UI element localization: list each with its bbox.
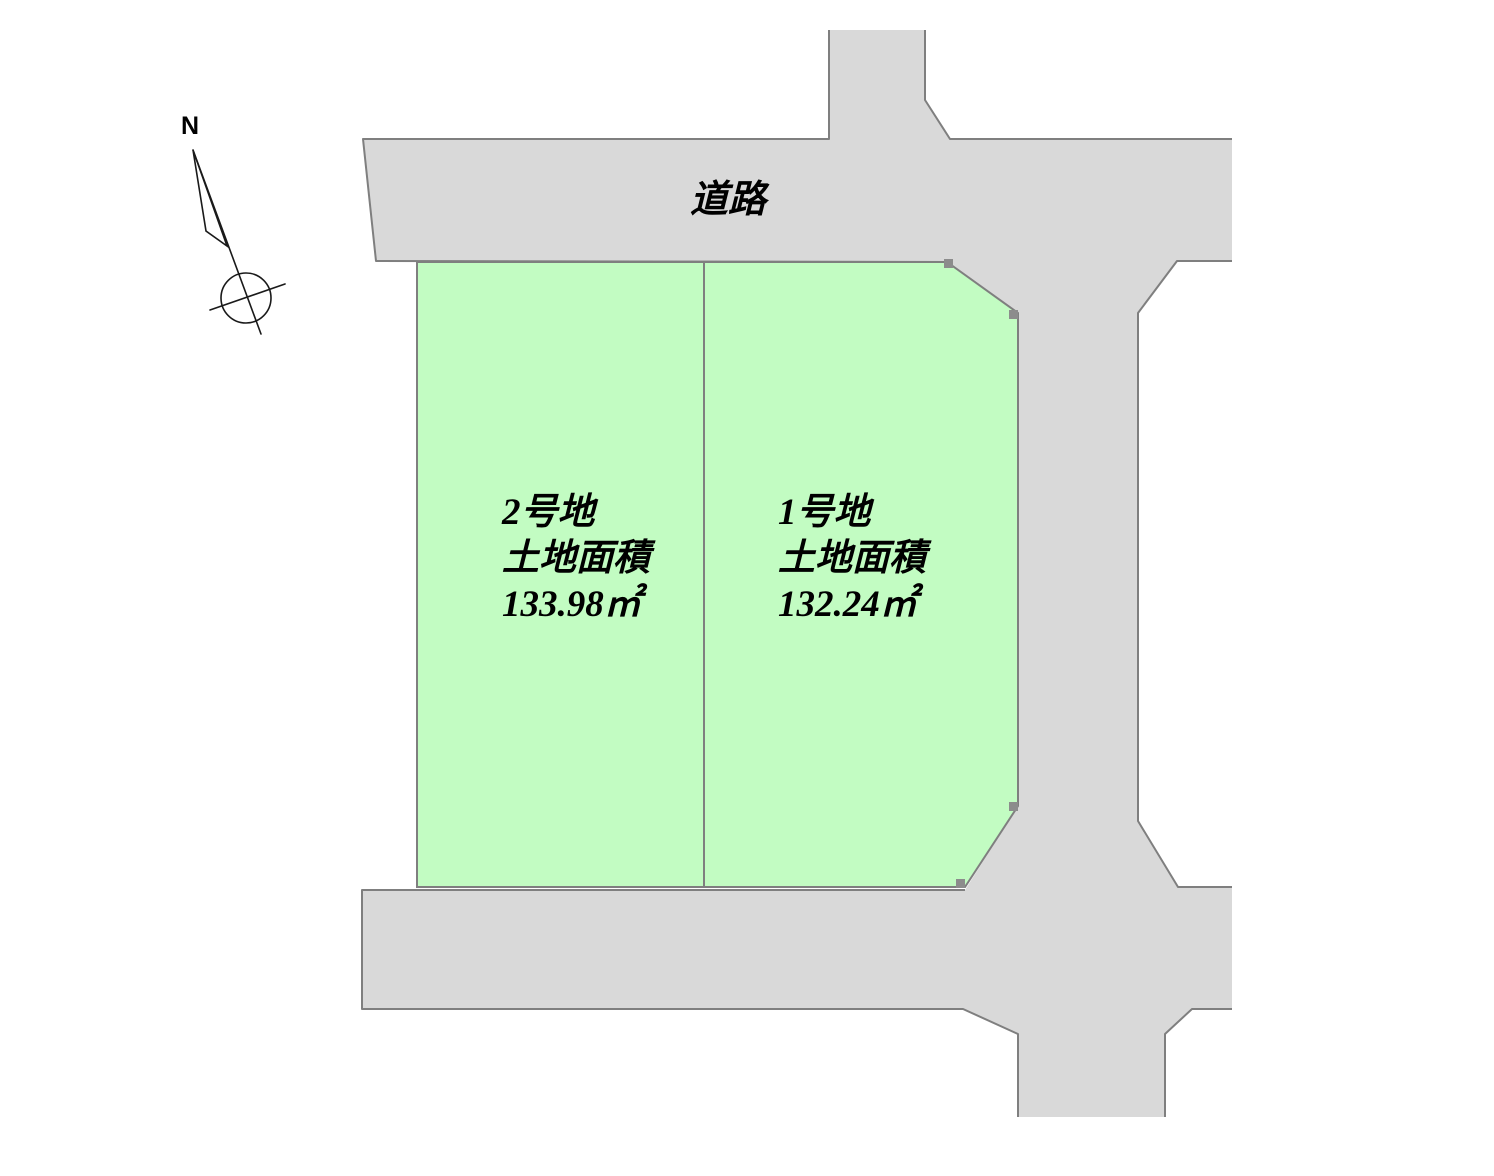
parcel-2-area-value: 133.98㎡ — [502, 582, 650, 628]
north-arrow-pennant — [193, 150, 227, 246]
road-label: 道路 — [690, 179, 766, 221]
parcel-1-label: 1号地 土地面積 132.24㎡ — [778, 490, 926, 628]
parcel-2-name: 2号地 — [502, 490, 650, 536]
parcel-1-area-label: 土地面積 — [778, 536, 926, 582]
site-plan-canvas: N 道路 2号地 土地面積 133.98㎡ 1号地 土地面積 132.24㎡ — [0, 0, 1494, 1176]
boundary-marker — [956, 879, 965, 888]
parcel-2-label: 2号地 土地面積 133.98㎡ — [502, 490, 650, 628]
north-arrow-icon — [193, 150, 285, 334]
parcel-1-area-value: 132.24㎡ — [778, 582, 926, 628]
boundary-marker — [944, 259, 953, 268]
boundary-marker — [1009, 802, 1018, 811]
boundary-marker — [1009, 310, 1018, 319]
parcel-1-name: 1号地 — [778, 490, 926, 536]
north-label: N — [181, 112, 199, 141]
parcel-2-area-label: 土地面積 — [502, 536, 650, 582]
site-plan-drawing — [0, 0, 1494, 1176]
